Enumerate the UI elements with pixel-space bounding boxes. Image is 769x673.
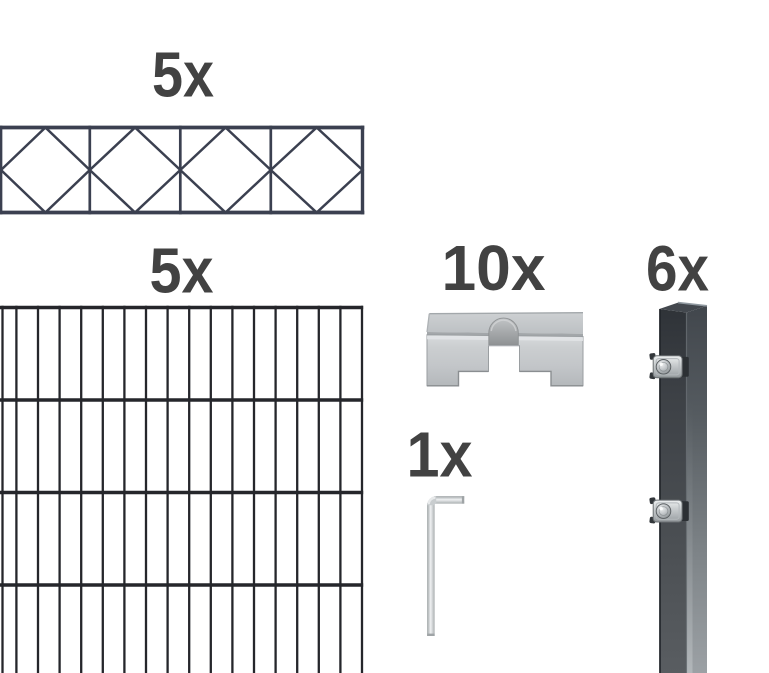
svg-text:6x: 6x [646, 233, 709, 305]
svg-text:5x: 5x [152, 39, 214, 111]
svg-text:5x: 5x [150, 235, 214, 307]
svg-text:1x: 1x [407, 419, 473, 491]
svg-text:10x: 10x [442, 232, 546, 304]
